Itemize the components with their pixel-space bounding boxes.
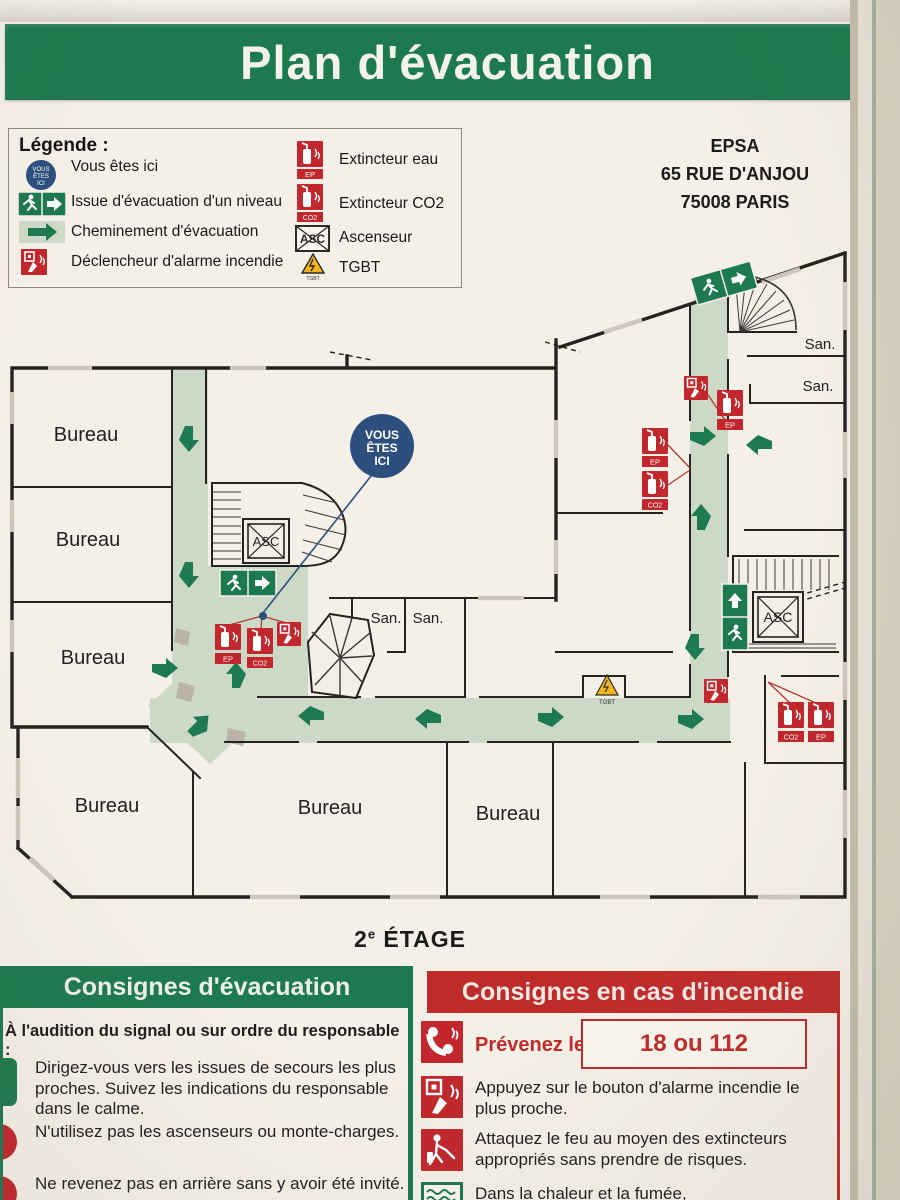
svg-text:VOUS: VOUS — [365, 428, 399, 442]
stairs-spiral-bottom — [308, 614, 374, 698]
fire-item: Dans la chaleur et la fumée, — [475, 1184, 825, 1200]
emergency-numbers: 18 ou 112 — [640, 1030, 748, 1058]
wall-background — [850, 0, 900, 1200]
elevator-right: ASC — [753, 592, 803, 642]
room-label-bureau: Bureau — [476, 803, 541, 825]
room-label-san: San. — [803, 378, 834, 395]
evacuation-item: Dirigez-vous vers les issues de secours … — [35, 1058, 405, 1120]
legend-label-elevator: Ascenseur — [339, 229, 412, 247]
fire-item: Appuyez sur le bouton d'alarme incendie … — [475, 1078, 825, 1119]
evacuation-corridors — [148, 268, 730, 764]
legend-label-ext-co2: Extincteur CO2 — [339, 195, 444, 213]
exit-sign-icon — [17, 191, 69, 217]
room-label-bureau: Bureau — [298, 797, 363, 819]
extinguisher-ep-top-right: EP — [717, 390, 743, 430]
evacuation-bullet-icon — [0, 1176, 17, 1200]
tgbt-marker: TGBT — [596, 675, 618, 706]
svg-text:CO2: CO2 — [303, 215, 318, 222]
panel-right-border — [837, 971, 840, 1200]
evacuation-instructions-panel: Consignes d'évacuation À l'audition du s… — [0, 966, 411, 1200]
fire-alarm-bottom-right — [704, 679, 728, 703]
svg-text:ASC: ASC — [253, 534, 280, 549]
svg-text:ASC: ASC — [764, 609, 793, 625]
evacuation-instructions-header: Consignes d'évacuation — [3, 966, 411, 1008]
extinguisher-co2-right: CO2 — [642, 471, 668, 510]
evacuation-item: Ne revenez pas en arrière sans y avoir é… — [35, 1174, 405, 1195]
svg-text:CO2: CO2 — [253, 661, 268, 668]
you-are-here-icon: VOUS ÊTES ICI — [23, 157, 63, 193]
legend-heading: Légende : — [19, 135, 109, 157]
svg-text:VOUS: VOUS — [32, 167, 49, 173]
title-bar: Plan d'évacuation — [5, 24, 890, 100]
extinguisher-co2-icon: CO2 — [297, 184, 327, 224]
floor-label: 2e ÉTAGE — [250, 926, 570, 953]
wall-dashes — [330, 342, 845, 604]
exit-sign-left — [220, 570, 276, 596]
exit-sign-right-vertical — [722, 584, 748, 650]
extinguisher-ep-bottom-right: EP — [808, 702, 834, 742]
extinguisher-ep-left: EP — [215, 624, 241, 664]
extinguisher-water-icon: EP — [297, 141, 327, 181]
alarm-button-icon — [421, 1076, 463, 1118]
address-line3: 75008 PARIS — [615, 189, 855, 217]
evacuation-item: N'utilisez pas les ascenseurs ou monte-c… — [35, 1122, 405, 1143]
you-are-here-marker: VOUS ÊTES ICI — [259, 414, 414, 620]
smoke-crawl-icon — [421, 1182, 463, 1200]
room-label-bureau: Bureau — [75, 795, 140, 817]
phone-fire-icon — [421, 1021, 463, 1063]
building-address: EPSA 65 RUE D'ANJOU 75008 PARIS — [615, 133, 855, 217]
room-label-san: San. — [413, 610, 444, 627]
svg-text:ÊTES: ÊTES — [366, 440, 397, 455]
room-label-san: San. — [805, 336, 836, 353]
room-label-bureau: Bureau — [54, 424, 119, 446]
svg-text:ASC: ASC — [300, 232, 326, 246]
fire-instructions-header: Consignes en cas d'incendie — [427, 971, 839, 1013]
fire-instructions-panel: Consignes en cas d'incendie Prévenez le … — [413, 966, 900, 1200]
floor-plan: ASC ASC — [0, 250, 860, 912]
evacuation-intro: À l'audition du signal ou sur ordre du r… — [5, 1022, 405, 1060]
evacuation-bullet-icon — [0, 1058, 17, 1106]
address-line2: 65 RUE D'ANJOU — [615, 161, 855, 189]
svg-text:CO2: CO2 — [784, 735, 799, 742]
svg-text:ÊTES: ÊTES — [33, 172, 49, 180]
svg-text:ICI: ICI — [374, 454, 389, 468]
svg-text:EP: EP — [305, 170, 315, 179]
fire-alarm-left — [277, 622, 301, 646]
extinguisher-co2-bottom-right: CO2 — [778, 702, 804, 742]
room-label-bureau: Bureau — [61, 647, 126, 669]
svg-text:EP: EP — [725, 421, 735, 430]
svg-text:EP: EP — [223, 655, 233, 664]
photo-top-frame — [0, 0, 900, 22]
elevator-icon: ASC — [295, 225, 331, 253]
address-line1: EPSA — [615, 133, 855, 161]
evacuation-bullet-icon — [0, 1124, 17, 1160]
svg-text:ICI: ICI — [37, 181, 45, 187]
fire-alarm-top-right — [684, 376, 708, 400]
legend-label-path: Cheminement d'évacuation — [71, 223, 258, 241]
extinguish-fire-icon — [421, 1129, 463, 1171]
fire-item: Attaquez le feu au moyen des extincteurs… — [475, 1129, 825, 1170]
elevator-left: ASC — [243, 519, 289, 563]
extinguisher-ep-right: EP — [642, 428, 668, 467]
room-label-bureau: Bureau — [56, 529, 121, 551]
legend-label-you-are-here: Vous êtes ici — [71, 158, 158, 176]
extinguisher-co2-left: CO2 — [247, 628, 273, 668]
legend-label-exit: Issue d'évacuation d'un niveau — [71, 193, 282, 211]
svg-text:TGBT: TGBT — [599, 700, 615, 706]
emergency-numbers-box: 18 ou 112 — [581, 1019, 807, 1069]
svg-text:CO2: CO2 — [648, 503, 663, 510]
page-title: Plan d'évacuation — [240, 35, 655, 90]
svg-text:EP: EP — [650, 458, 660, 467]
room-label-san: San. — [371, 610, 402, 627]
svg-text:EP: EP — [816, 733, 826, 742]
legend-label-ext-water: Extincteur eau — [339, 151, 438, 169]
evacuation-path-arrow-icon — [19, 221, 67, 245]
call-label: Prévenez le : — [475, 1034, 597, 1057]
